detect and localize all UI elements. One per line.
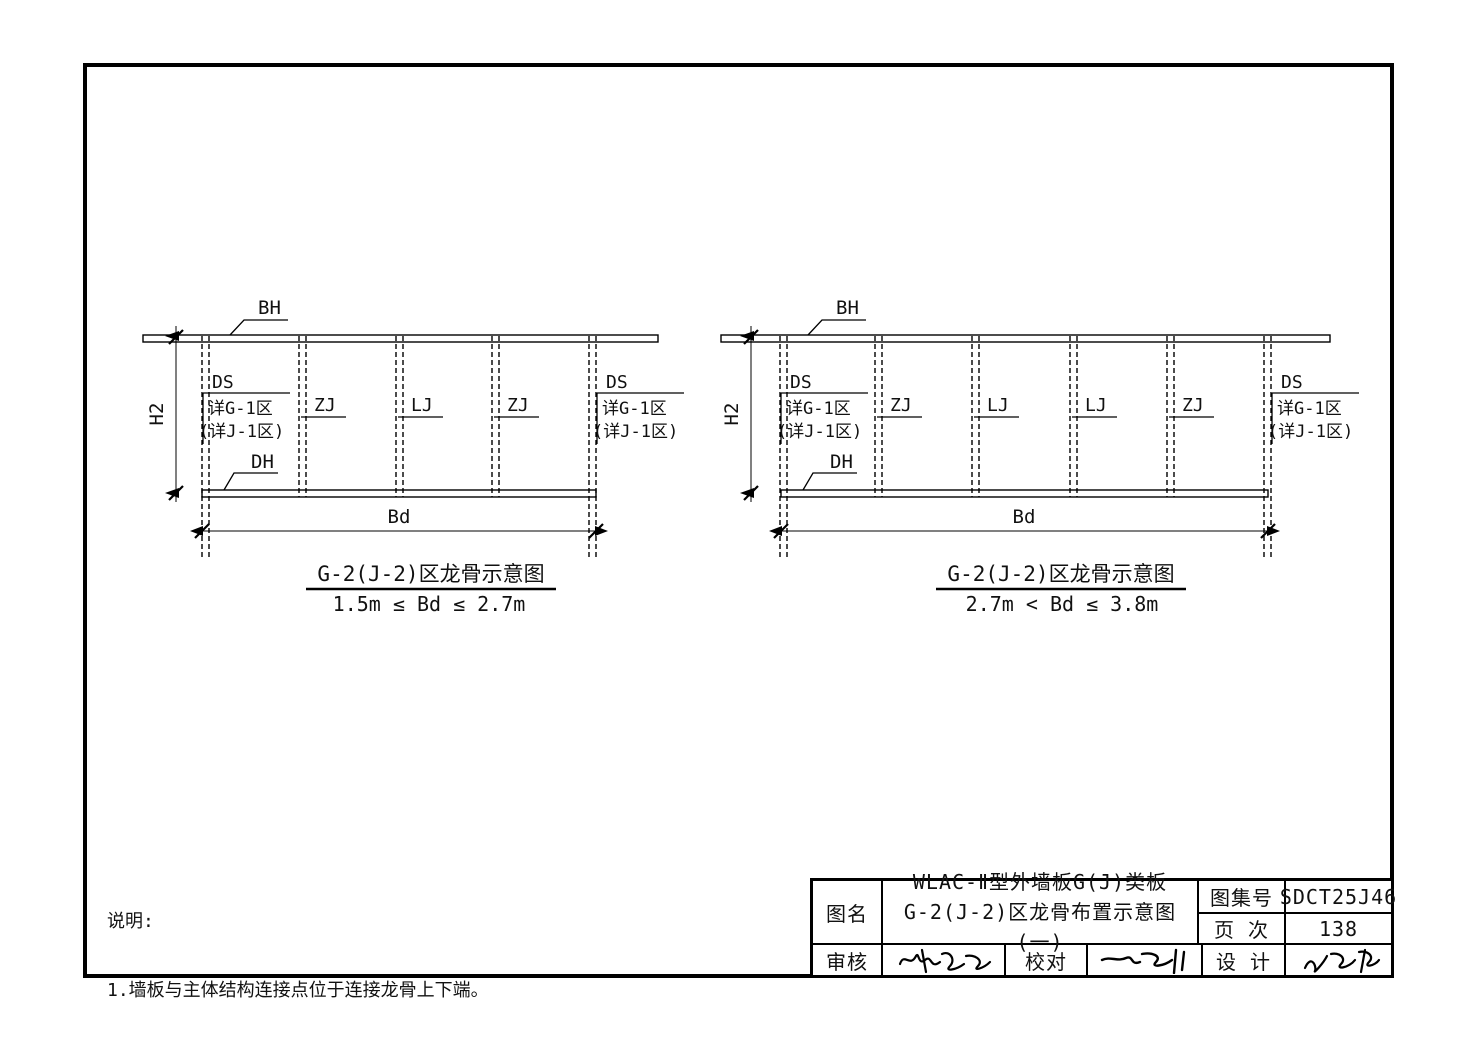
zj-label: ZJ xyxy=(507,395,529,416)
zj-label: ZJ xyxy=(314,395,336,416)
title-block: 图名 WLAC-Ⅱ型外墙板G(J)类板 G-2(J-2)区龙骨布置示意图(一) … xyxy=(810,878,1394,978)
dh-bottom-bar xyxy=(781,490,1268,497)
keel-diagram-right: BH DH H2 DS 详G-1区 (详J- xyxy=(698,293,1363,618)
ds-label: DS xyxy=(606,372,628,393)
ds-note2: (详J-1区) xyxy=(1268,422,1353,442)
lj-label: LJ xyxy=(987,395,1009,416)
atlas-no-label: 图集号 xyxy=(1199,881,1284,912)
ds-note1: 详G-1区 xyxy=(786,399,851,419)
ds-callout-right: DS 详G-1区 (详J-1区) xyxy=(593,372,684,444)
member-labels: ZJ LJ ZJ xyxy=(301,395,539,417)
dh-label: DH xyxy=(830,451,853,473)
ds-callout-left: DS 详G-1区 (详J-1区) xyxy=(777,372,868,444)
bd-label: Bd xyxy=(388,506,411,528)
atlas-no: SDCT25J46 xyxy=(1286,881,1391,912)
ds-callout-left: DS 详G-1区 (详J-1区) xyxy=(199,372,290,444)
bh-leader-line xyxy=(808,320,866,335)
proofreader-label: 校对 xyxy=(1006,945,1086,975)
zj-label: ZJ xyxy=(1182,395,1204,416)
diagram-title: G-2(J-2)区龙骨示意图 xyxy=(317,562,544,586)
bh-leader-line xyxy=(230,320,288,335)
member-labels: ZJ LJ LJ ZJ xyxy=(877,395,1214,417)
page-no-label: 页 次 xyxy=(1199,914,1284,943)
h2-label: H2 xyxy=(721,403,743,426)
h2-label: H2 xyxy=(146,403,168,426)
ds-label: DS xyxy=(790,372,812,393)
designer-signature-icon xyxy=(1286,945,1391,975)
ds-note2: (详J-1区) xyxy=(777,422,862,442)
lj-label: LJ xyxy=(411,395,433,416)
designer-label: 设 计 xyxy=(1203,945,1284,975)
drawing-name-line1: WLAC-Ⅱ型外墙板G(J)类板 xyxy=(913,867,1167,897)
ds-stud-right xyxy=(589,336,596,560)
keel-diagram-left: BH DH H2 DS xyxy=(130,293,690,618)
h2-dimension: H2 xyxy=(721,326,758,502)
bh-label: BH xyxy=(258,297,281,319)
notes: 说明: 1.墙板与主体结构连接点位于连接龙骨上下端。 2.LJ-连接龙骨; DS… xyxy=(107,864,532,1039)
ds-label: DS xyxy=(1281,372,1303,393)
ds-note1: 详G-1区 xyxy=(208,399,273,419)
bd-dimension: Bd xyxy=(769,506,1280,538)
diagram-title: G-2(J-2)区龙骨示意图 xyxy=(947,562,1174,586)
ds-note1: 详G-1区 xyxy=(602,399,667,419)
dh-leader-line xyxy=(803,473,857,490)
bh-label: BH xyxy=(836,297,859,319)
bh-top-bar xyxy=(721,335,1330,342)
reviewer-signature-icon xyxy=(883,945,1004,975)
dh-leader-line xyxy=(224,473,278,490)
ds-note2: (详J-1区) xyxy=(593,422,678,442)
page-no: 138 xyxy=(1286,914,1391,943)
ds-note1: 详G-1区 xyxy=(1277,399,1342,419)
dh-label: DH xyxy=(251,451,274,473)
ds-label: DS xyxy=(212,372,234,393)
zj-label: ZJ xyxy=(890,395,912,416)
diagram-subtitle: 2.7m < Bd ≤ 3.8m xyxy=(966,592,1159,616)
drawing-name: WLAC-Ⅱ型外墙板G(J)类板 G-2(J-2)区龙骨布置示意图(一) xyxy=(883,881,1197,943)
dh-bottom-bar xyxy=(202,490,596,497)
notes-heading: 说明: xyxy=(107,910,532,933)
note-line: 1.墙板与主体结构连接点位于连接龙骨上下端。 xyxy=(107,979,532,1002)
reviewer-label: 审核 xyxy=(813,945,881,975)
ds-callout-right: DS 详G-1区 (详J-1区) xyxy=(1268,372,1359,444)
lj-label: LJ xyxy=(1085,395,1107,416)
diagram-subtitle: 1.5m ≤ Bd ≤ 2.7m xyxy=(333,592,526,616)
h2-dimension: H2 xyxy=(146,326,183,502)
proofreader-signature-icon xyxy=(1088,945,1201,975)
bh-top-bar xyxy=(143,335,658,342)
bd-label: Bd xyxy=(1013,506,1036,528)
bd-dimension: Bd xyxy=(190,506,608,538)
drawing-name-label: 图名 xyxy=(813,881,881,943)
ds-note2: (详J-1区) xyxy=(199,422,284,442)
drawing-sheet: BH DH H2 DS xyxy=(0,0,1477,1039)
